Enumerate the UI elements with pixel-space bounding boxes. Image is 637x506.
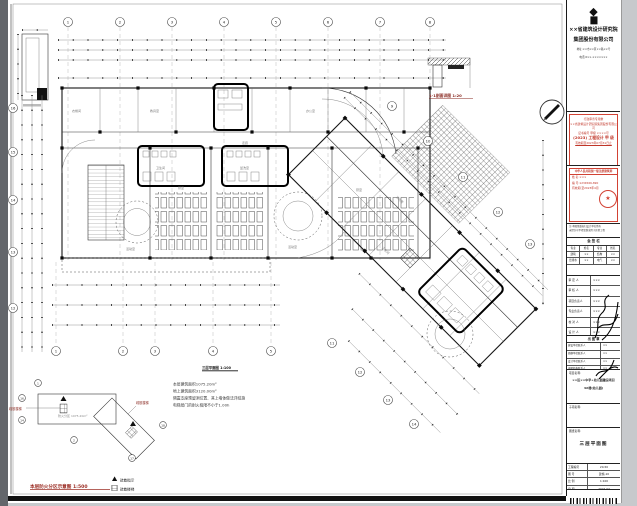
grid-label: 17 bbox=[130, 456, 134, 460]
copyright-note-line2: 未经许可不得复制或用于其他工程 bbox=[569, 229, 618, 233]
stair-callout: 疏散楼梯 bbox=[136, 400, 150, 405]
contact-role: 建设单位联系人 bbox=[567, 343, 601, 350]
room-label: 办公室 bbox=[306, 108, 315, 113]
info-value: 20-50 bbox=[588, 464, 620, 470]
signature-table: 审 定 人××× 审 核 人××× 项目负责人××× 专业负责人××× 校 对 … bbox=[567, 276, 620, 336]
info-label: 工程编号 bbox=[567, 464, 588, 470]
stair-symbol bbox=[60, 404, 67, 413]
grid-bubble: 8 bbox=[426, 18, 435, 27]
room-label: 盥洗室 bbox=[240, 165, 249, 170]
project-name-label: 项目名称: bbox=[569, 371, 618, 375]
legend: 疏散指示 疏散楼梯 bbox=[112, 476, 135, 491]
grid-bubbles-sw: 11 12 13 14 bbox=[328, 339, 419, 429]
company-name-line2: 集团股份有限公司 bbox=[567, 37, 620, 44]
grid-label: 16 bbox=[11, 106, 16, 111]
copyright-note: 注:本图纸版权归设计单位所有 未经许可不得复制或用于其他工程 bbox=[567, 224, 620, 238]
toilet-unit-3 bbox=[417, 247, 505, 335]
room-label: 教具室 bbox=[150, 108, 159, 113]
countersign-table: 会 签 栏 专业 姓名 专业 姓名 建筑 ×× 结构 ×× 给排水 ×× 电气 … bbox=[567, 238, 620, 276]
grid-bubbles-top: 1 2 3 4 5 6 7 8 bbox=[64, 18, 435, 27]
contacts-table: 出 图 章 建设单位联系人×× 勘察单位联系人×× 设计单位联系人×× 审图机构… bbox=[567, 336, 620, 370]
sign-name: ××× bbox=[591, 297, 620, 306]
grid-bubble: 3 bbox=[168, 18, 177, 27]
grid-label: 12 bbox=[11, 306, 16, 311]
service-core bbox=[214, 84, 248, 130]
grid-label: 14 bbox=[412, 422, 417, 427]
sign-role: 审 核 人 bbox=[567, 286, 591, 295]
info-value: 2022.07 bbox=[588, 486, 620, 490]
grid-label: 12 bbox=[358, 370, 363, 375]
floor-plan-svg: 1 2 3 4 5 6 7 8 16 15 14 13 12 bbox=[0, 0, 637, 506]
grid-label: 12 bbox=[496, 210, 501, 215]
company-logo-base-icon: ▆ bbox=[567, 17, 620, 24]
stair-hatch-icon bbox=[112, 486, 118, 491]
grid-bubble: 2 bbox=[119, 347, 128, 356]
grid-bubble: 14 bbox=[9, 196, 18, 205]
key-plan-bubbles: 1 16 14 2 18 17 bbox=[19, 380, 167, 462]
note-line: 隔震支座预留洞位置、其上墙体做法详结施 bbox=[173, 396, 245, 401]
contacts-title: 出 图 章 bbox=[567, 336, 620, 343]
fire-area-label: 防火分区 1075.20m² bbox=[58, 413, 88, 418]
section-detail: 1-1剖面详图 1:20 bbox=[428, 58, 473, 99]
grid-bubble: 4 bbox=[209, 347, 218, 356]
info-label: 日 期 bbox=[567, 486, 588, 490]
grid-bubble: 5 bbox=[267, 347, 276, 356]
grid-label: 13 bbox=[386, 398, 391, 403]
info-label: 比 例 bbox=[567, 478, 588, 484]
evac-triangle-icon bbox=[61, 396, 67, 401]
grid-bubble: 1 bbox=[52, 347, 61, 356]
sign-name: ××× bbox=[591, 286, 620, 295]
legend-label: 疏散楼梯 bbox=[120, 487, 135, 492]
sign-name: ××× bbox=[591, 276, 620, 285]
stamp-validity-line: 有效期至2023年07月31日止 bbox=[570, 141, 617, 146]
sign-role: 项目负责人 bbox=[567, 297, 591, 306]
grid-bubble: 16 bbox=[9, 104, 18, 113]
stair-callout: 疏散楼梯 bbox=[9, 406, 23, 411]
grid-bubble: 6 bbox=[324, 18, 333, 27]
company-address: 地址:××市××区××路××号 bbox=[567, 48, 620, 52]
grid-bubble: 12 bbox=[356, 368, 365, 377]
grid-bubble: 5 bbox=[272, 18, 281, 27]
grid-label: 11 bbox=[461, 175, 466, 180]
countersign-cell: 电气 bbox=[594, 258, 607, 264]
notes: 本层建筑面积1075.20m² 地上建筑面积3120.00m² 隔震支座预留洞位… bbox=[173, 382, 245, 408]
stair bbox=[88, 165, 124, 240]
room-label: 活动室 bbox=[126, 246, 135, 251]
grid-label: 13 bbox=[528, 242, 533, 247]
sign-role: 专业负责人 bbox=[567, 307, 591, 316]
round-table-3 bbox=[427, 311, 473, 357]
grid-bubble: 11 bbox=[459, 173, 468, 182]
registration-seal-icon: ★ bbox=[599, 190, 617, 208]
grid-bubble: 4 bbox=[220, 18, 229, 27]
key-plan: 疏散楼梯 疏散楼梯 防火分区 1075.20m² 1 16 14 2 18 17… bbox=[9, 380, 166, 490]
grid-bubble: 13 bbox=[384, 396, 393, 405]
toilet-unit-1 bbox=[138, 146, 204, 186]
contact-role: 设计单位联系人 bbox=[567, 359, 601, 366]
section-detail-caption: 1-1剖面详图 1:20 bbox=[429, 93, 462, 98]
room-label: 活动室 bbox=[288, 244, 297, 249]
grid-bubble: 14 bbox=[410, 420, 419, 429]
company-name-line1: ××省建筑设计研究院 bbox=[567, 27, 620, 34]
drawing-name-value: 三层平面图 bbox=[569, 441, 618, 447]
grid-label: 10 bbox=[426, 139, 431, 144]
approval-stamp-section: 行政审查专用章 ××省建筑设计研究院集团股份有限公司 证书编号 甲级 ××××号… bbox=[567, 112, 620, 166]
plan-caption: 三层平面图 1:100 bbox=[202, 365, 238, 371]
grid-bubbles-bottom: 1 2 3 4 5 bbox=[52, 347, 276, 356]
sign-name: ××× bbox=[591, 328, 620, 336]
grid-bubble: 13 bbox=[9, 248, 18, 257]
architect-stamp-section: 中华人民共和国一级注册建筑师 姓 名:××× 编 号:1234566-890 有… bbox=[567, 166, 620, 224]
info-value: 1:100 bbox=[588, 478, 620, 484]
countersign-title: 会 签 栏 bbox=[567, 238, 620, 246]
grid-label: 1 bbox=[37, 381, 39, 385]
grid-label: 2 bbox=[73, 438, 75, 442]
project-name-value-line2: 4#楼(幼儿园) bbox=[569, 386, 618, 391]
room-label: 寝室 bbox=[178, 185, 184, 190]
drawing-info-table: 工程编号20-50 图 号建施-10 比 例1:100 日 期2022.07 bbox=[567, 464, 620, 490]
grid-label: 16 bbox=[20, 396, 24, 400]
dimension-chain-bottom bbox=[52, 262, 280, 346]
company-phone: 电话:0××-××××××× bbox=[567, 56, 620, 60]
stamp-line: ××省建筑设计研究院集团股份有限公司 bbox=[570, 122, 617, 131]
plan-caption-text: 三层平面图 1:100 bbox=[202, 365, 232, 370]
title-block: ◆ ▆ ××省建筑设计研究院 集团股份有限公司 地址:××市××区××路××号 … bbox=[566, 0, 620, 496]
note-line: 电梯层门的耐火极限不小于1.00h bbox=[173, 403, 230, 408]
grid-bubble: 15 bbox=[9, 148, 18, 157]
room-label: 走廊 bbox=[242, 140, 248, 145]
grid-bubble: 12 bbox=[494, 208, 503, 217]
company-block: ◆ ▆ ××省建筑设计研究院 集团股份有限公司 地址:××市××区××路××号 … bbox=[567, 0, 620, 112]
grid-bubble: 10 bbox=[424, 137, 433, 146]
grid-bubble: 1 bbox=[64, 18, 73, 27]
note-line: 本层建筑面积1075.20m² bbox=[173, 382, 217, 387]
sign-name: ××× bbox=[591, 307, 620, 316]
grid-bubble: 3 bbox=[151, 347, 160, 356]
grid-bubble: 2 bbox=[116, 18, 125, 27]
barcode-marks bbox=[570, 498, 617, 504]
grid-bubble: 9 bbox=[388, 102, 397, 111]
info-label: 图 号 bbox=[567, 471, 588, 477]
dimension-chain-left bbox=[22, 95, 42, 352]
key-plan-caption: 本层防火分区示意图 1:500 bbox=[29, 483, 88, 490]
north-arrow-icon bbox=[540, 100, 564, 124]
evac-triangle-icon bbox=[112, 476, 117, 481]
note-line: 地上建筑面积3120.00m² bbox=[173, 389, 217, 394]
toilet-unit-2 bbox=[222, 146, 288, 186]
info-value: 建施-10 bbox=[588, 471, 620, 477]
grid-bubble: 11 bbox=[328, 339, 337, 348]
grid-label: 11 bbox=[330, 341, 335, 346]
room-label: 寝室 bbox=[356, 187, 362, 192]
approval-stamp: 行政审查专用章 ××省建筑设计研究院集团股份有限公司 证书编号 甲级 ××××号… bbox=[569, 114, 618, 166]
grid-bubble: 13 bbox=[526, 240, 535, 249]
sheet-frame bbox=[11, 4, 562, 494]
grid-bubble: 12 bbox=[9, 304, 18, 313]
grid-label: 14 bbox=[20, 418, 24, 422]
sign-role: 审 定 人 bbox=[567, 276, 591, 285]
sign-role: 校 对 人 bbox=[567, 318, 591, 327]
contact-value: ×× bbox=[601, 359, 620, 366]
drawing-sheet-page: { "plan": { "caption": "三层平面图 1:100", "d… bbox=[0, 0, 637, 506]
room-label: 衣帽间 bbox=[72, 108, 81, 113]
drawing-name-field: 图纸名称: 三层平面图 bbox=[567, 428, 620, 464]
grid-label: 15 bbox=[11, 150, 16, 155]
countersign-cell: ×× bbox=[580, 258, 593, 264]
desk-area bbox=[155, 192, 414, 252]
round-table-2 bbox=[274, 192, 322, 240]
project-name-value-line1: ××区××中学+幼儿园建设项目 bbox=[569, 378, 618, 383]
sign-name: ××× bbox=[591, 318, 620, 327]
contact-value: ×× bbox=[601, 343, 620, 350]
subproject-name-field: 子项名称: bbox=[567, 404, 620, 428]
project-name-field: 项目名称: ××区××中学+幼儿园建设项目 4#楼(幼儿园) bbox=[567, 370, 620, 404]
subproject-name-label: 子项名称: bbox=[569, 405, 618, 409]
sign-role: 设 计 人 bbox=[567, 328, 591, 336]
registered-architect-stamp: 中华人民共和国一级注册建筑师 姓 名:××× 编 号:1234566-890 有… bbox=[569, 168, 618, 222]
contact-value: ×× bbox=[601, 351, 620, 358]
grid-bubble: 7 bbox=[376, 18, 385, 27]
grid-label: 18 bbox=[161, 423, 165, 427]
countersign-cell: 给排水 bbox=[567, 258, 580, 264]
grid-label: 13 bbox=[11, 250, 16, 255]
legend-label: 疏散指示 bbox=[120, 478, 135, 483]
contact-role: 勘察单位联系人 bbox=[567, 351, 601, 358]
evac-triangle-icon bbox=[130, 421, 136, 426]
drawing-name-label: 图纸名称: bbox=[569, 429, 618, 433]
dimension-chain-top bbox=[58, 40, 446, 78]
room-label: 卫生间 bbox=[156, 165, 165, 170]
countersign-cell: ×× bbox=[607, 258, 620, 264]
grid-label: 14 bbox=[11, 198, 16, 203]
